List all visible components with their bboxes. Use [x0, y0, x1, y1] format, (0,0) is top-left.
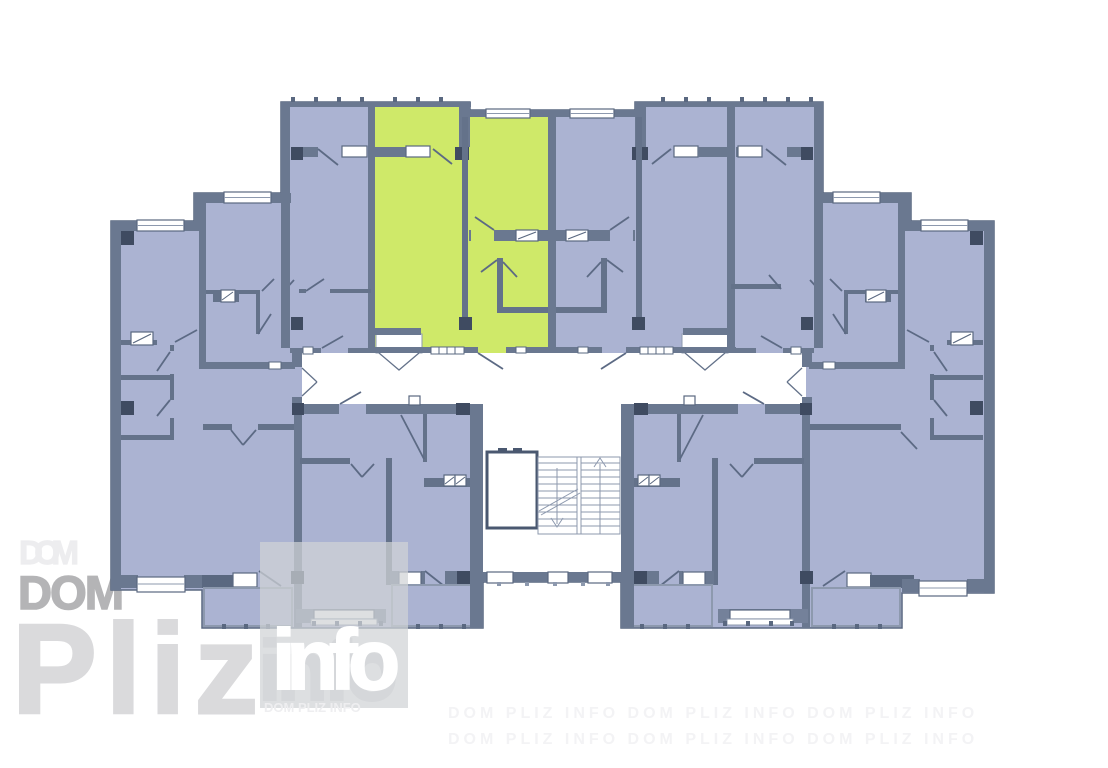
- svg-text:DOM PLIZ INFO: DOM PLIZ INFO: [264, 700, 361, 715]
- svg-text:DOM PLIZ INFO DOM PLIZ INFO DO: DOM PLIZ INFO DOM PLIZ INFO DOM PLIZ INF…: [448, 705, 978, 722]
- svg-text:info: info: [272, 613, 400, 708]
- svg-text:DOM PLIZ INFO DOM PLIZ INFO DO: DOM PLIZ INFO DOM PLIZ INFO DOM PLIZ INF…: [448, 731, 978, 748]
